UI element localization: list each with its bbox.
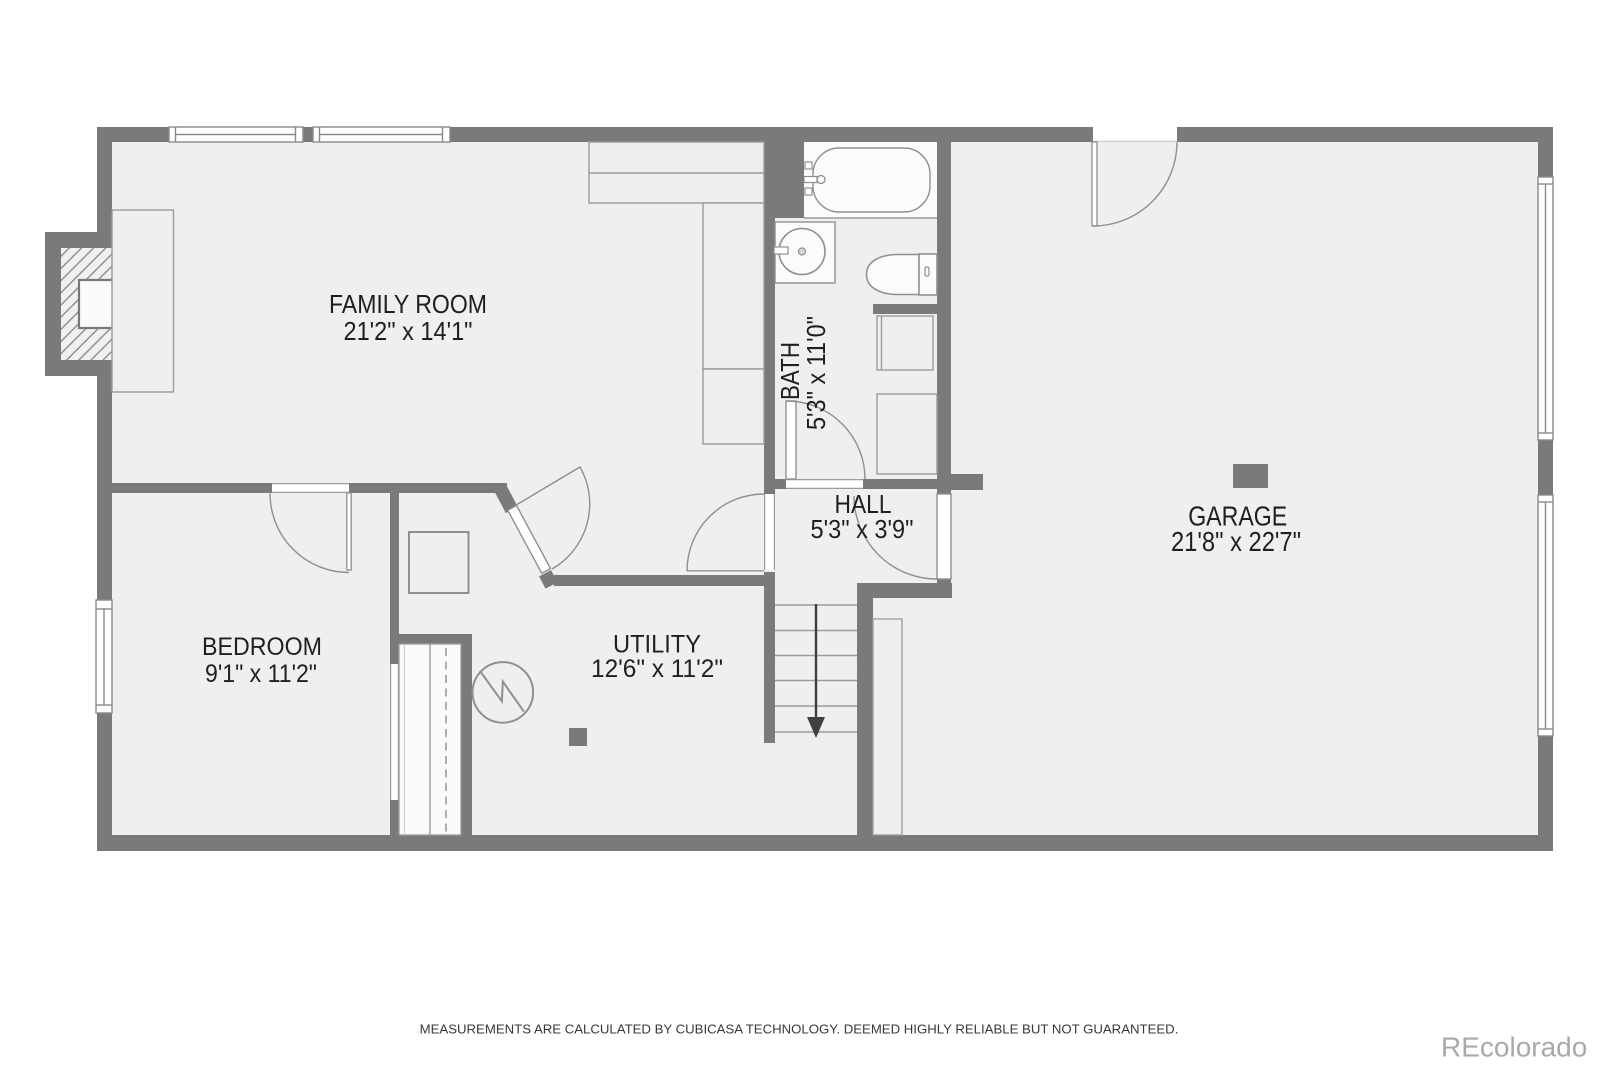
svg-text:5'3" x 3'9": 5'3" x 3'9" <box>811 514 914 544</box>
svg-text:MEASUREMENTS ARE CALCULATED BY: MEASUREMENTS ARE CALCULATED BY CUBICASA … <box>420 1022 1179 1037</box>
svg-text:BEDROOM: BEDROOM <box>202 633 322 661</box>
svg-text:REcolorado: REcolorado <box>1441 1032 1587 1063</box>
svg-text:9'1" x 11'2": 9'1" x 11'2" <box>205 660 317 688</box>
svg-text:21'8" x 22'7": 21'8" x 22'7" <box>1171 526 1301 557</box>
svg-text:21'2" x 14'1": 21'2" x 14'1" <box>344 316 473 346</box>
svg-text:FAMILY ROOM: FAMILY ROOM <box>329 289 487 319</box>
svg-text:5'3" x 11'0": 5'3" x 11'0" <box>801 316 831 430</box>
svg-text:12'6" x 11'2": 12'6" x 11'2" <box>591 655 723 683</box>
